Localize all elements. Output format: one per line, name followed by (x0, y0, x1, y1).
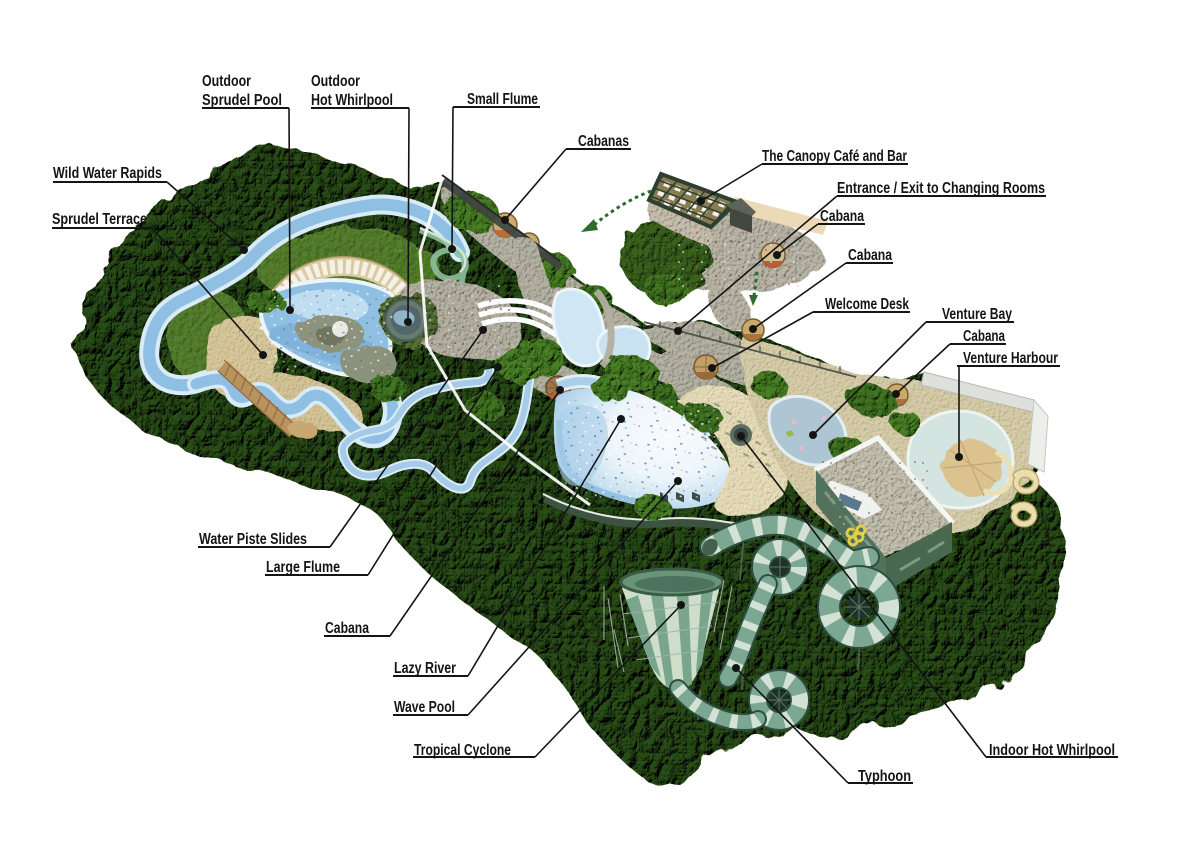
svg-text:Cabana: Cabana (848, 247, 892, 264)
svg-text:Lazy River: Lazy River (394, 660, 456, 677)
svg-text:Venture Bay: Venture Bay (942, 306, 1012, 323)
svg-text:Cabana: Cabana (820, 208, 864, 225)
svg-text:Venture Harbour: Venture Harbour (963, 350, 1058, 367)
svg-text:Outdoor: Outdoor (311, 73, 360, 90)
svg-text:Entrance / Exit to Changing Ro: Entrance / Exit to Changing Rooms (837, 180, 1045, 197)
svg-text:Wild Water Rapids: Wild Water Rapids (53, 165, 162, 182)
svg-text:Small Flume: Small Flume (467, 91, 538, 108)
svg-text:Tropical Cyclone: Tropical Cyclone (414, 742, 511, 759)
svg-text:Cabana: Cabana (325, 620, 369, 637)
svg-text:Welcome Desk: Welcome Desk (825, 296, 909, 313)
svg-text:Wave Pool: Wave Pool (394, 699, 455, 716)
svg-text:Large Flume: Large Flume (266, 559, 340, 576)
svg-text:The Canopy Café and Bar: The Canopy Café and Bar (762, 148, 907, 165)
svg-text:Hot Whirlpool: Hot Whirlpool (311, 92, 393, 109)
svg-text:Sprudel Terrace: Sprudel Terrace (52, 211, 147, 228)
svg-text:Water Piste Slides: Water Piste Slides (199, 531, 307, 548)
svg-text:Cabana: Cabana (963, 328, 1005, 345)
svg-text:Cabanas: Cabanas (578, 133, 629, 150)
svg-text:Outdoor: Outdoor (202, 73, 251, 90)
svg-text:Typhoon: Typhoon (858, 768, 911, 785)
svg-text:Indoor Hot Whirlpool: Indoor Hot Whirlpool (989, 742, 1115, 759)
svg-text:Sprudel Pool: Sprudel Pool (202, 92, 282, 109)
